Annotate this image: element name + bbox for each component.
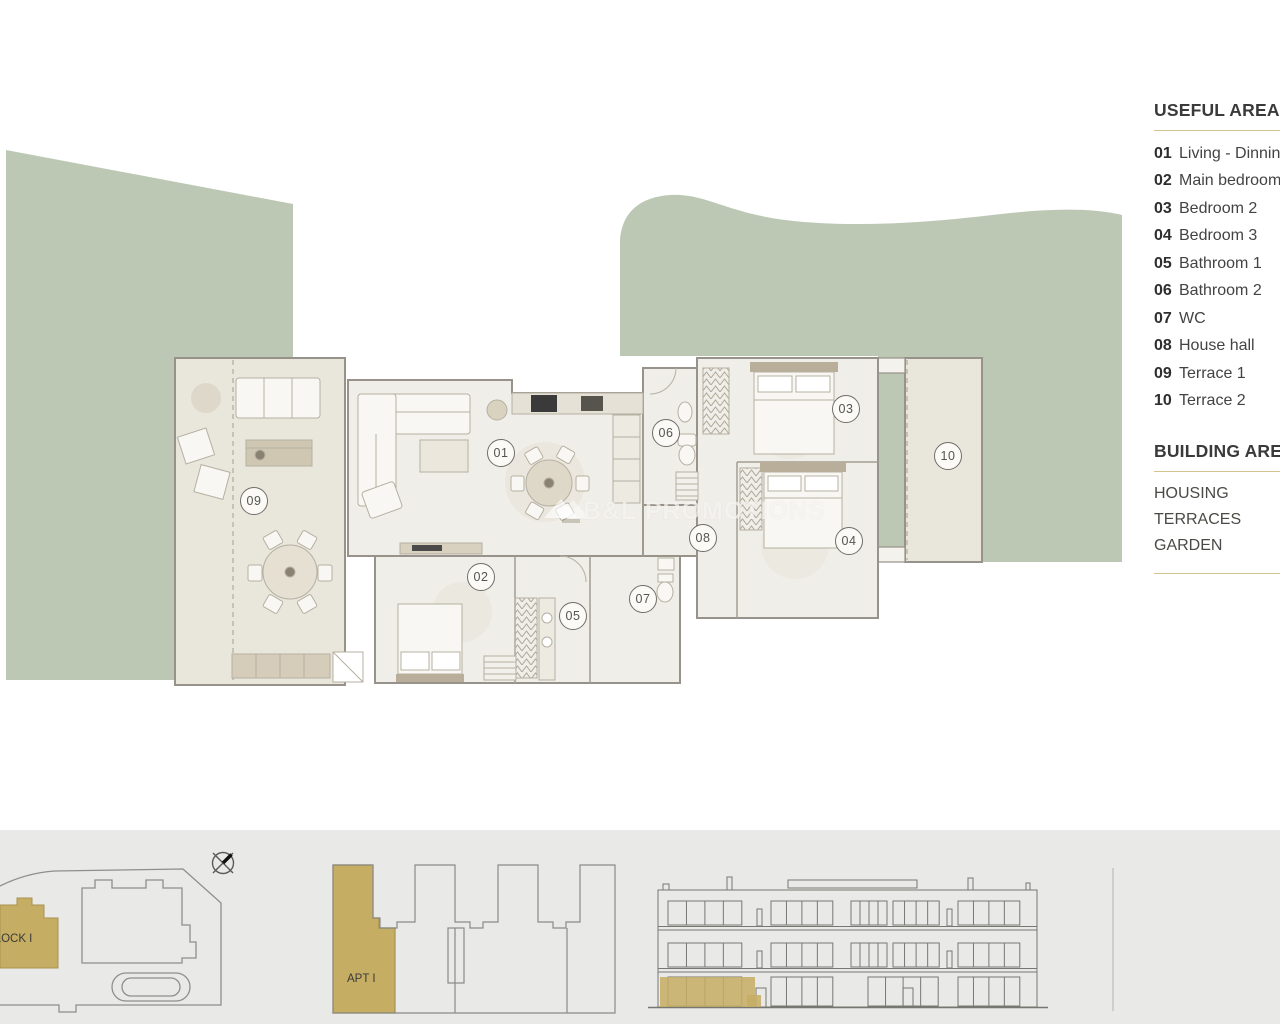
legend-item-06: 06Bathroom 2 [1154,278,1280,306]
site-block1-label: BLOCK I [0,933,32,945]
room-circle-02: 02 [467,563,495,591]
site-plan: BLOCK I [0,853,234,1013]
building-area-item-housing: HOUSING [1154,481,1280,507]
legend-item-10: 10Terrace 2 [1154,388,1280,416]
floor-plan-drawing [0,0,1280,830]
useful-area-legend: USEFUL AREA 01Living - Dinning 02Main be… [1154,100,1280,415]
north-arrow [213,853,234,874]
building-area-item-garden: GARDEN [1154,533,1280,559]
building-area-rule-bottom [1154,573,1280,574]
room-circle-06: 06 [652,419,680,447]
room-circle-09: 09 [240,487,268,515]
footer-strip: BLOCK I APT I [0,830,1280,1024]
legend-item-07: 07WC [1154,305,1280,333]
legend-item-02: 02Main bedroom [1154,168,1280,196]
legend-item-03: 03Bedroom 2 [1154,195,1280,223]
building-area-rule [1154,471,1280,472]
floor-plan-page: B&L PROMOTIONS 01 02 03 04 05 06 07 08 0… [0,0,1280,1024]
legend-item-08: 08House hall [1154,333,1280,361]
legend-item-04: 04Bedroom 3 [1154,223,1280,251]
legend-item-09: 09Terrace 1 [1154,360,1280,388]
building-area-title: BUILDING AREA [1154,441,1280,462]
key-plan-apt1-label: APT I [347,973,376,985]
room-circle-08: 08 [689,524,717,552]
legend-item-05: 05Bathroom 1 [1154,250,1280,278]
watermark-text: B&L PROMOTIONS [583,497,826,526]
room-circle-10: 10 [934,442,962,470]
elevation-apartment-highlight [660,977,761,1007]
room-circle-07: 07 [629,585,657,613]
building-area-item-terraces: TERRACES [1154,507,1280,533]
room-circle-04: 04 [835,527,863,555]
room-circle-03: 03 [832,395,860,423]
key-plan-apt1-shape [333,865,395,1013]
key-plan: APT I [333,865,615,1013]
building-elevation [648,877,1048,1008]
room-circle-05: 05 [559,602,587,630]
building-area-legend: BUILDING AREA HOUSING TERRACES GARDEN [1154,441,1280,583]
useful-area-title: USEFUL AREA [1154,100,1280,121]
room-circle-01: 01 [487,439,515,467]
legend-rule [1154,130,1280,131]
footer-drawings: BLOCK I APT I [0,830,1280,1024]
legend-item-01: 01Living - Dinning [1154,140,1280,168]
